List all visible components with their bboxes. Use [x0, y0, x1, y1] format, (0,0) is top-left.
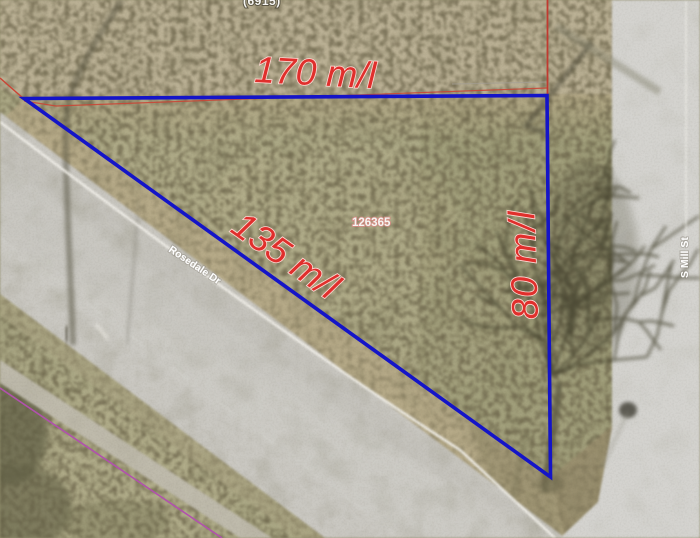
svg-text:126365: 126365	[352, 217, 391, 229]
svg-text:S Mill St: S Mill St	[679, 237, 691, 278]
svg-text:(6915): (6915)	[243, 0, 281, 8]
svg-text:80 m/l: 80 m/l	[501, 209, 546, 320]
svg-text:170 m/l: 170 m/l	[254, 49, 379, 96]
